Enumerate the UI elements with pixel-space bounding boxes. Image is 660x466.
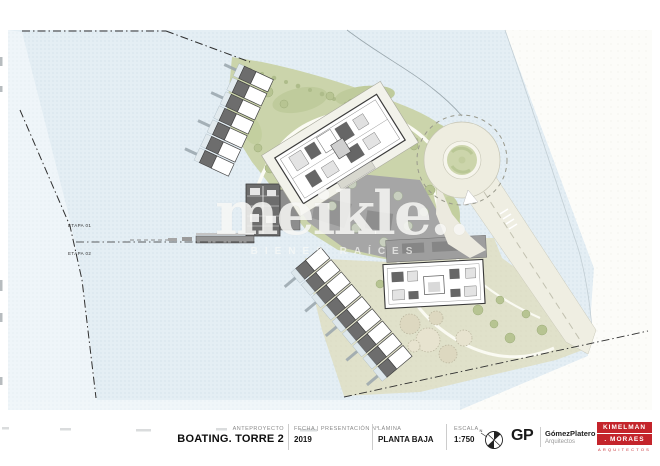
date-label: FECHA | PRESENTACIÓN N° — [294, 426, 368, 432]
firm1-name: GómezPlatero — [545, 429, 595, 438]
sheet-value: PLANTA BAJA — [378, 435, 444, 444]
gomezplatero-logo: GP — [511, 427, 533, 445]
project-type-label: ANTEPROYECTO — [158, 426, 284, 432]
north-arrow-icon: N — [479, 426, 505, 452]
divider — [446, 424, 447, 450]
date-section: FECHA | PRESENTACIÓN N° 2019 — [294, 426, 368, 444]
etapa-02-label: ETAPA 02 — [68, 251, 91, 256]
pier-edge — [196, 233, 254, 235]
plan-sheet: ETAPA 01 ETAPA 02 meikle.. BIENES RAÍCES… — [0, 0, 660, 466]
title-block: ANTEPROYECTO BOATING. TORRE 2 FECHA | PR… — [0, 420, 660, 462]
divider — [288, 424, 289, 450]
firm2-line1: KIMELMAN — [597, 422, 652, 433]
kimelman-moraes-logo: KIMELMAN . MORAES ARQUITECTOS — [597, 422, 652, 452]
sheet-label: LÁMINA — [378, 426, 444, 432]
sheet-section: LÁMINA PLANTA BAJA — [378, 426, 444, 444]
gomezplatero-name-block: GómezPlatero Arquitectos — [545, 429, 595, 445]
firm2-subtitle: ARQUITECTOS — [597, 447, 652, 452]
firm2-line2: . MORAES — [597, 434, 652, 445]
firm1-subtitle: Arquitectos — [545, 439, 595, 445]
project-section: ANTEPROYECTO BOATING. TORRE 2 — [158, 426, 284, 445]
svg-text:N: N — [480, 428, 483, 433]
site-plan-drawing: ETAPA 01 ETAPA 02 — [0, 0, 660, 466]
project-name: BOATING. TORRE 2 — [158, 433, 284, 445]
divider — [372, 424, 373, 450]
date-value: 2019 — [294, 435, 368, 444]
etapa-01-label: ETAPA 01 — [68, 223, 91, 228]
divider — [540, 427, 541, 447]
